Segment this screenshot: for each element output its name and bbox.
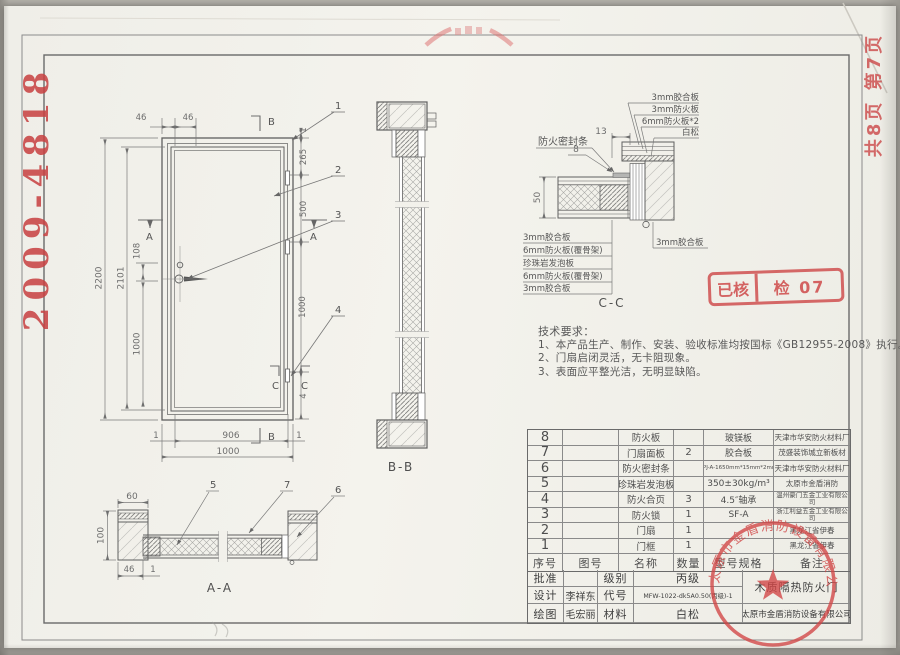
scan-edge-bottom — [0, 644, 900, 655]
designer-name: 李祥东 — [564, 587, 598, 604]
grade-label: 级别 — [598, 570, 634, 587]
row-name: 防火合页 — [619, 492, 674, 508]
row-no: 4 — [528, 492, 563, 508]
part-leader-numbers: 1 2 3 4 — [335, 101, 341, 316]
col-header-qty: 数量 — [674, 554, 704, 571]
scan-edge-right — [880, 0, 900, 655]
row-qty: 1 — [674, 539, 704, 555]
row-spec: 350±30kg/m³ — [704, 477, 774, 493]
row-fig — [563, 523, 619, 539]
mark-b-bottom: B — [268, 432, 275, 443]
dim-46a: 46 — [136, 113, 147, 123]
lock-handle — [162, 246, 208, 302]
dim-1-bottom-left: 1 — [153, 431, 158, 441]
section-aa — [118, 510, 317, 565]
parts-table: 8 防火板 玻镁板 天津市华安防火材料厂 7 门扇面板 2 胶合板 茂盛装饰城立… — [527, 429, 851, 572]
tech-notes-title: 技术要求： — [538, 325, 900, 339]
cc-label-ply-top: 3mm胶合板 — [652, 92, 700, 103]
cc-label-pine: 白松 — [682, 127, 700, 138]
approve-label: 批准 — [528, 570, 564, 587]
part-leaders — [187, 112, 345, 376]
row-spec: 4.5″轴承 — [704, 492, 774, 508]
drafter-name: 毛宏丽 — [564, 604, 598, 623]
row-qty: 1 — [674, 508, 704, 524]
row-qty: 1 — [674, 523, 704, 539]
row-name: 防火板 — [619, 430, 674, 446]
draw-label: 绘图 — [528, 604, 564, 623]
cc-left-label-4: 6mm防火板(覆骨架) — [523, 271, 603, 282]
aa-leader-5: 5 — [210, 480, 216, 491]
row-fig — [563, 477, 619, 493]
row-fig — [563, 461, 619, 477]
aa-leader-7: 7 — [284, 480, 290, 491]
approver — [564, 570, 598, 587]
mark-a-left: A — [146, 232, 153, 243]
dim-1000-bottom: 1000 — [217, 447, 240, 457]
row-name: 门扇 — [619, 523, 674, 539]
aa-dim-60: 60 — [126, 492, 138, 502]
leader-1: 1 — [335, 101, 341, 112]
row-spec: 胶合板 — [704, 446, 774, 462]
col-header-no: 序号 — [528, 554, 563, 571]
code-label: 代号 — [598, 587, 634, 604]
row-remark: 黑龙江省伊春 — [774, 539, 850, 555]
row-no: 6 — [528, 461, 563, 477]
row-fig — [563, 492, 619, 508]
material-value: 白松 — [634, 604, 743, 623]
paper-fold-lines — [40, 3, 887, 93]
dim-1-bottom-right: 1 — [296, 431, 301, 441]
row-no: 3 — [528, 508, 563, 524]
row-fig — [563, 539, 619, 555]
cc-left-label-2: 6mm防火板(覆骨架) — [523, 245, 603, 256]
row-remark: 天津市华安防火材料厂 — [774, 461, 850, 477]
scan-edge-left — [0, 0, 9, 655]
col-header-name: 名称 — [619, 554, 674, 571]
cc-seal-label: 防火密封条 — [538, 135, 588, 148]
col-header-fig: 图号 — [563, 554, 619, 571]
cc-dim-50: 50 — [533, 192, 543, 204]
row-qty: 2 — [674, 446, 704, 462]
row-remark: 浙江利益五金工业有限公司 — [774, 508, 850, 524]
col-header-remark: 备注 — [774, 554, 850, 571]
product-name: 木质隔热防火门 — [743, 570, 850, 604]
row-fig — [563, 508, 619, 524]
row-qty — [674, 461, 704, 477]
pencil-marks — [212, 622, 228, 637]
company-name: 太原市金盾消防设备有限公司 — [743, 604, 850, 623]
aa-leader-6: 6 — [335, 485, 341, 496]
tech-note-1: 1、本产品生产、制作、安装、验收标准均按国标《GB12955-2008》执行。 — [538, 339, 900, 353]
dim-2200: 2200 — [95, 266, 105, 289]
door-elevation — [162, 138, 293, 420]
row-no: 2 — [528, 523, 563, 539]
dim-46b: 46 — [183, 113, 194, 123]
cc-left-label-5: 3mm胶合板 — [523, 283, 571, 294]
row-spec — [704, 523, 774, 539]
review-stamp-right: 检 07 — [758, 271, 842, 302]
leader-2: 2 — [335, 165, 341, 176]
aa-dim-46: 46 — [124, 565, 135, 575]
dim-2101: 2101 — [117, 267, 127, 290]
tech-note-3: 3、表面应平整光洁，无明显缺陷。 — [538, 366, 900, 380]
row-qty: 3 — [674, 492, 704, 508]
row-qty — [674, 477, 704, 493]
scanned-fire-door-drawing: 2200 2101 108 1000 46 46 1 265 500 1000 … — [0, 0, 900, 655]
leader-4: 4 — [335, 305, 341, 316]
row-name: 防火锁 — [619, 508, 674, 524]
aa-dim-1: 1 — [150, 565, 155, 575]
section-label-cc: C-C — [598, 296, 625, 310]
cc-label-fireboard2-top: 6mm防火板*2 — [642, 116, 699, 127]
cc-left-label-3: 珍珠岩发泡板 — [523, 258, 575, 269]
cc-dim-13: 13 — [595, 127, 606, 137]
row-spec: SF-A — [704, 508, 774, 524]
material-label: 材料 — [598, 604, 634, 623]
dim-1000-right: 1000 — [298, 296, 308, 318]
dim-500: 500 — [299, 201, 309, 217]
title-block: 批准 级别 丙级 木质隔热防火门 设计 李祥东 代号 MFW-1022-dk5A… — [527, 570, 851, 624]
row-remark: 温州豪门五金工业有限公司 — [774, 492, 850, 508]
cc-label-fireboard-top: 3mm防火板 — [652, 104, 700, 115]
technical-notes: 技术要求： 1、本产品生产、制作、安装、验收标准均按国标《GB12955-200… — [538, 325, 900, 379]
model-code: MFW-1022-dk5A0.50(丙级)-1 — [634, 587, 743, 604]
elevation-dimensions — [100, 118, 309, 462]
row-name: 门扇面板 — [619, 446, 674, 462]
row-remark: 天津市华安防火材料厂 — [774, 430, 850, 446]
document-number-stamp: 2009-4818 — [17, 48, 59, 348]
mark-b-top: B — [268, 117, 275, 128]
tech-note-2: 2、门扇启闭灵活，无卡阻现象。 — [538, 352, 900, 366]
row-spec: 玻镁板 — [704, 430, 774, 446]
row-name: 珍珠岩发泡板 — [619, 477, 674, 493]
row-name: 门框 — [619, 539, 674, 555]
row-fig — [563, 446, 619, 462]
section-bb — [377, 102, 436, 448]
dim-906: 906 — [222, 431, 239, 441]
row-no: 7 — [528, 446, 563, 462]
section-mark-letters: B B A A C C — [146, 117, 317, 443]
row-no: 1 — [528, 539, 563, 555]
aa-break — [219, 531, 228, 562]
cc-left-label-1: 3mm胶合板 — [523, 232, 571, 243]
row-no: 5 — [528, 477, 563, 493]
col-header-spec: 型号规格 — [704, 554, 774, 571]
row-spec: FPJ-A-1650mm*15mm*2mm — [704, 461, 774, 477]
mark-a-right: A — [310, 232, 317, 243]
row-remark: 黑龙江省伊春 — [774, 523, 850, 539]
dim-108: 108 — [133, 243, 143, 259]
row-remark: 茂盛装饰城立新板材 — [774, 446, 850, 462]
design-label: 设计 — [528, 587, 564, 604]
row-qty — [674, 430, 704, 446]
row-name: 防火密封条 — [619, 461, 674, 477]
review-stamp: 已核 检 07 — [707, 268, 844, 307]
dim-4: 4 — [299, 393, 309, 398]
aa-dim-100: 100 — [97, 527, 107, 544]
leader-3: 3 — [335, 210, 341, 221]
row-remark: 太原市金盾消防 — [774, 477, 850, 493]
dim-1000-left: 1000 — [133, 332, 143, 355]
dim-265: 265 — [299, 149, 309, 165]
mark-c-left: C — [272, 381, 279, 392]
row-spec — [704, 539, 774, 555]
row-fig — [563, 430, 619, 446]
review-stamp-left: 已核 — [711, 274, 759, 304]
grade-value: 丙级 — [634, 570, 743, 587]
row-no: 8 — [528, 430, 563, 446]
section-label-aa: A-A — [207, 581, 233, 595]
cc-right-label-ply: 3mm胶合板 — [656, 237, 704, 248]
mark-c-right: C — [301, 381, 308, 392]
section-label-bb: B-B — [388, 460, 414, 474]
